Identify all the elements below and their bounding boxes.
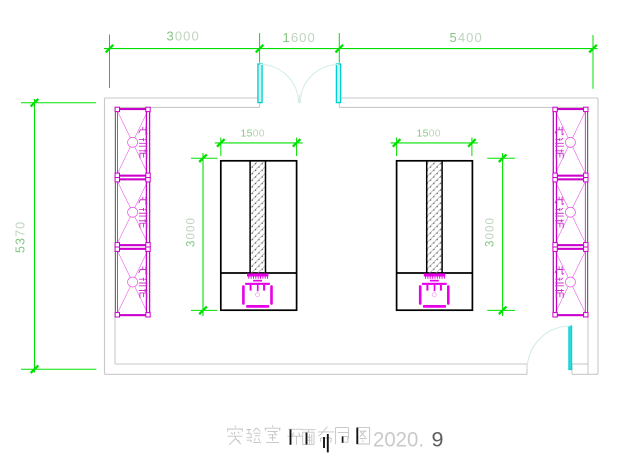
svg-text:5370: 5370 (13, 221, 27, 253)
svg-text:5400: 5400 (450, 30, 483, 45)
svg-text:2020.: 2020. (373, 428, 424, 452)
svg-text:9: 9 (432, 428, 444, 452)
svg-text:3000: 3000 (186, 217, 198, 247)
svg-text:1500: 1500 (417, 129, 441, 140)
svg-text:3000: 3000 (167, 29, 200, 44)
svg-text:1600: 1600 (283, 30, 316, 45)
svg-text:3000: 3000 (485, 217, 497, 247)
svg-text:1500: 1500 (241, 129, 265, 140)
